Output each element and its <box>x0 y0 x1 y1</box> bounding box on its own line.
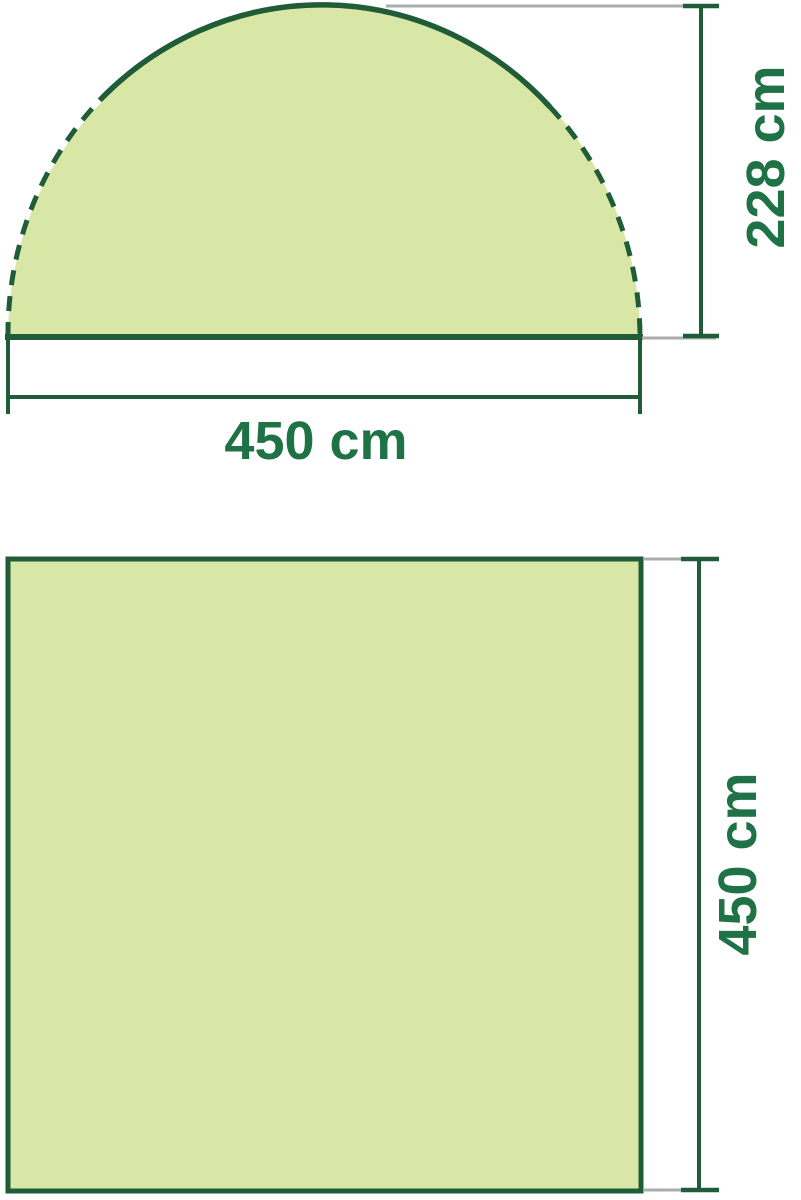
depth-dimension: 450 cm <box>644 559 768 1190</box>
floor-plan-square <box>8 559 641 1191</box>
side-elevation-view: 450 cm 228 cm <box>5 5 796 471</box>
diagram-canvas: 450 cm 228 cm 450 cm <box>0 0 801 1200</box>
floor-plan-view: 450 cm <box>8 559 768 1191</box>
width-dimension: 450 cm <box>8 324 640 471</box>
width-dimension-label: 450 cm <box>224 411 407 471</box>
dome-shape <box>8 6 640 337</box>
tent-dimensions-diagram: 450 cm 228 cm 450 cm <box>0 0 801 1200</box>
depth-dimension-label: 450 cm <box>708 772 768 955</box>
height-dimension-label: 228 cm <box>736 65 796 248</box>
